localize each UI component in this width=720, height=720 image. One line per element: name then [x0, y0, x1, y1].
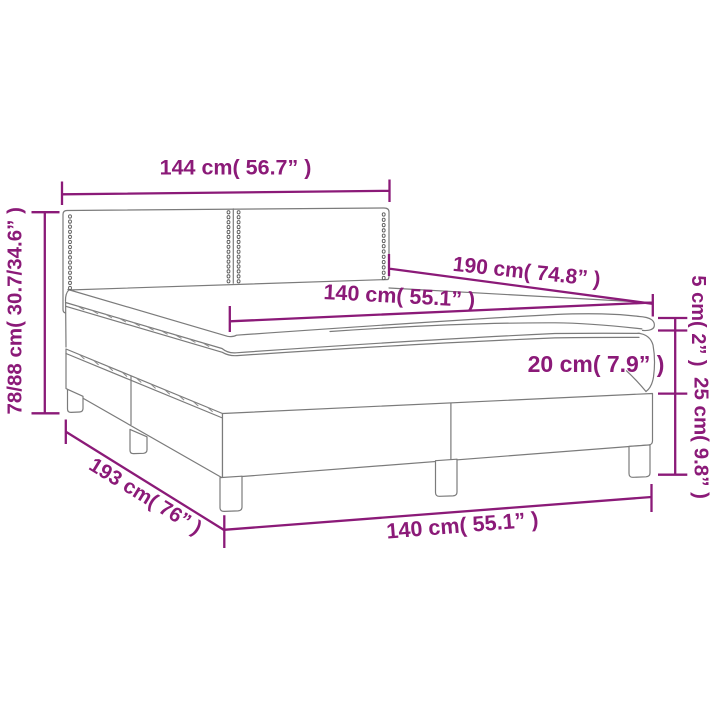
svg-text:190 cm( 74.8” ): 190 cm( 74.8” )	[452, 253, 602, 291]
svg-text:25 cm( 9.8” ): 25 cm( 9.8” )	[690, 377, 713, 499]
svg-text:5 cm( 2” ): 5 cm( 2” )	[687, 275, 709, 366]
svg-text:20 cm( 7.9” ): 20 cm( 7.9” )	[528, 351, 665, 377]
svg-text:193 cm( 76” ): 193 cm( 76” )	[85, 453, 206, 539]
svg-text:78/88 cm( 30.7/34.6” ): 78/88 cm( 30.7/34.6” )	[4, 207, 27, 414]
svg-text:140 cm( 55.1” ): 140 cm( 55.1” )	[385, 506, 539, 543]
svg-text:144 cm( 56.7” ): 144 cm( 56.7” )	[160, 156, 312, 180]
